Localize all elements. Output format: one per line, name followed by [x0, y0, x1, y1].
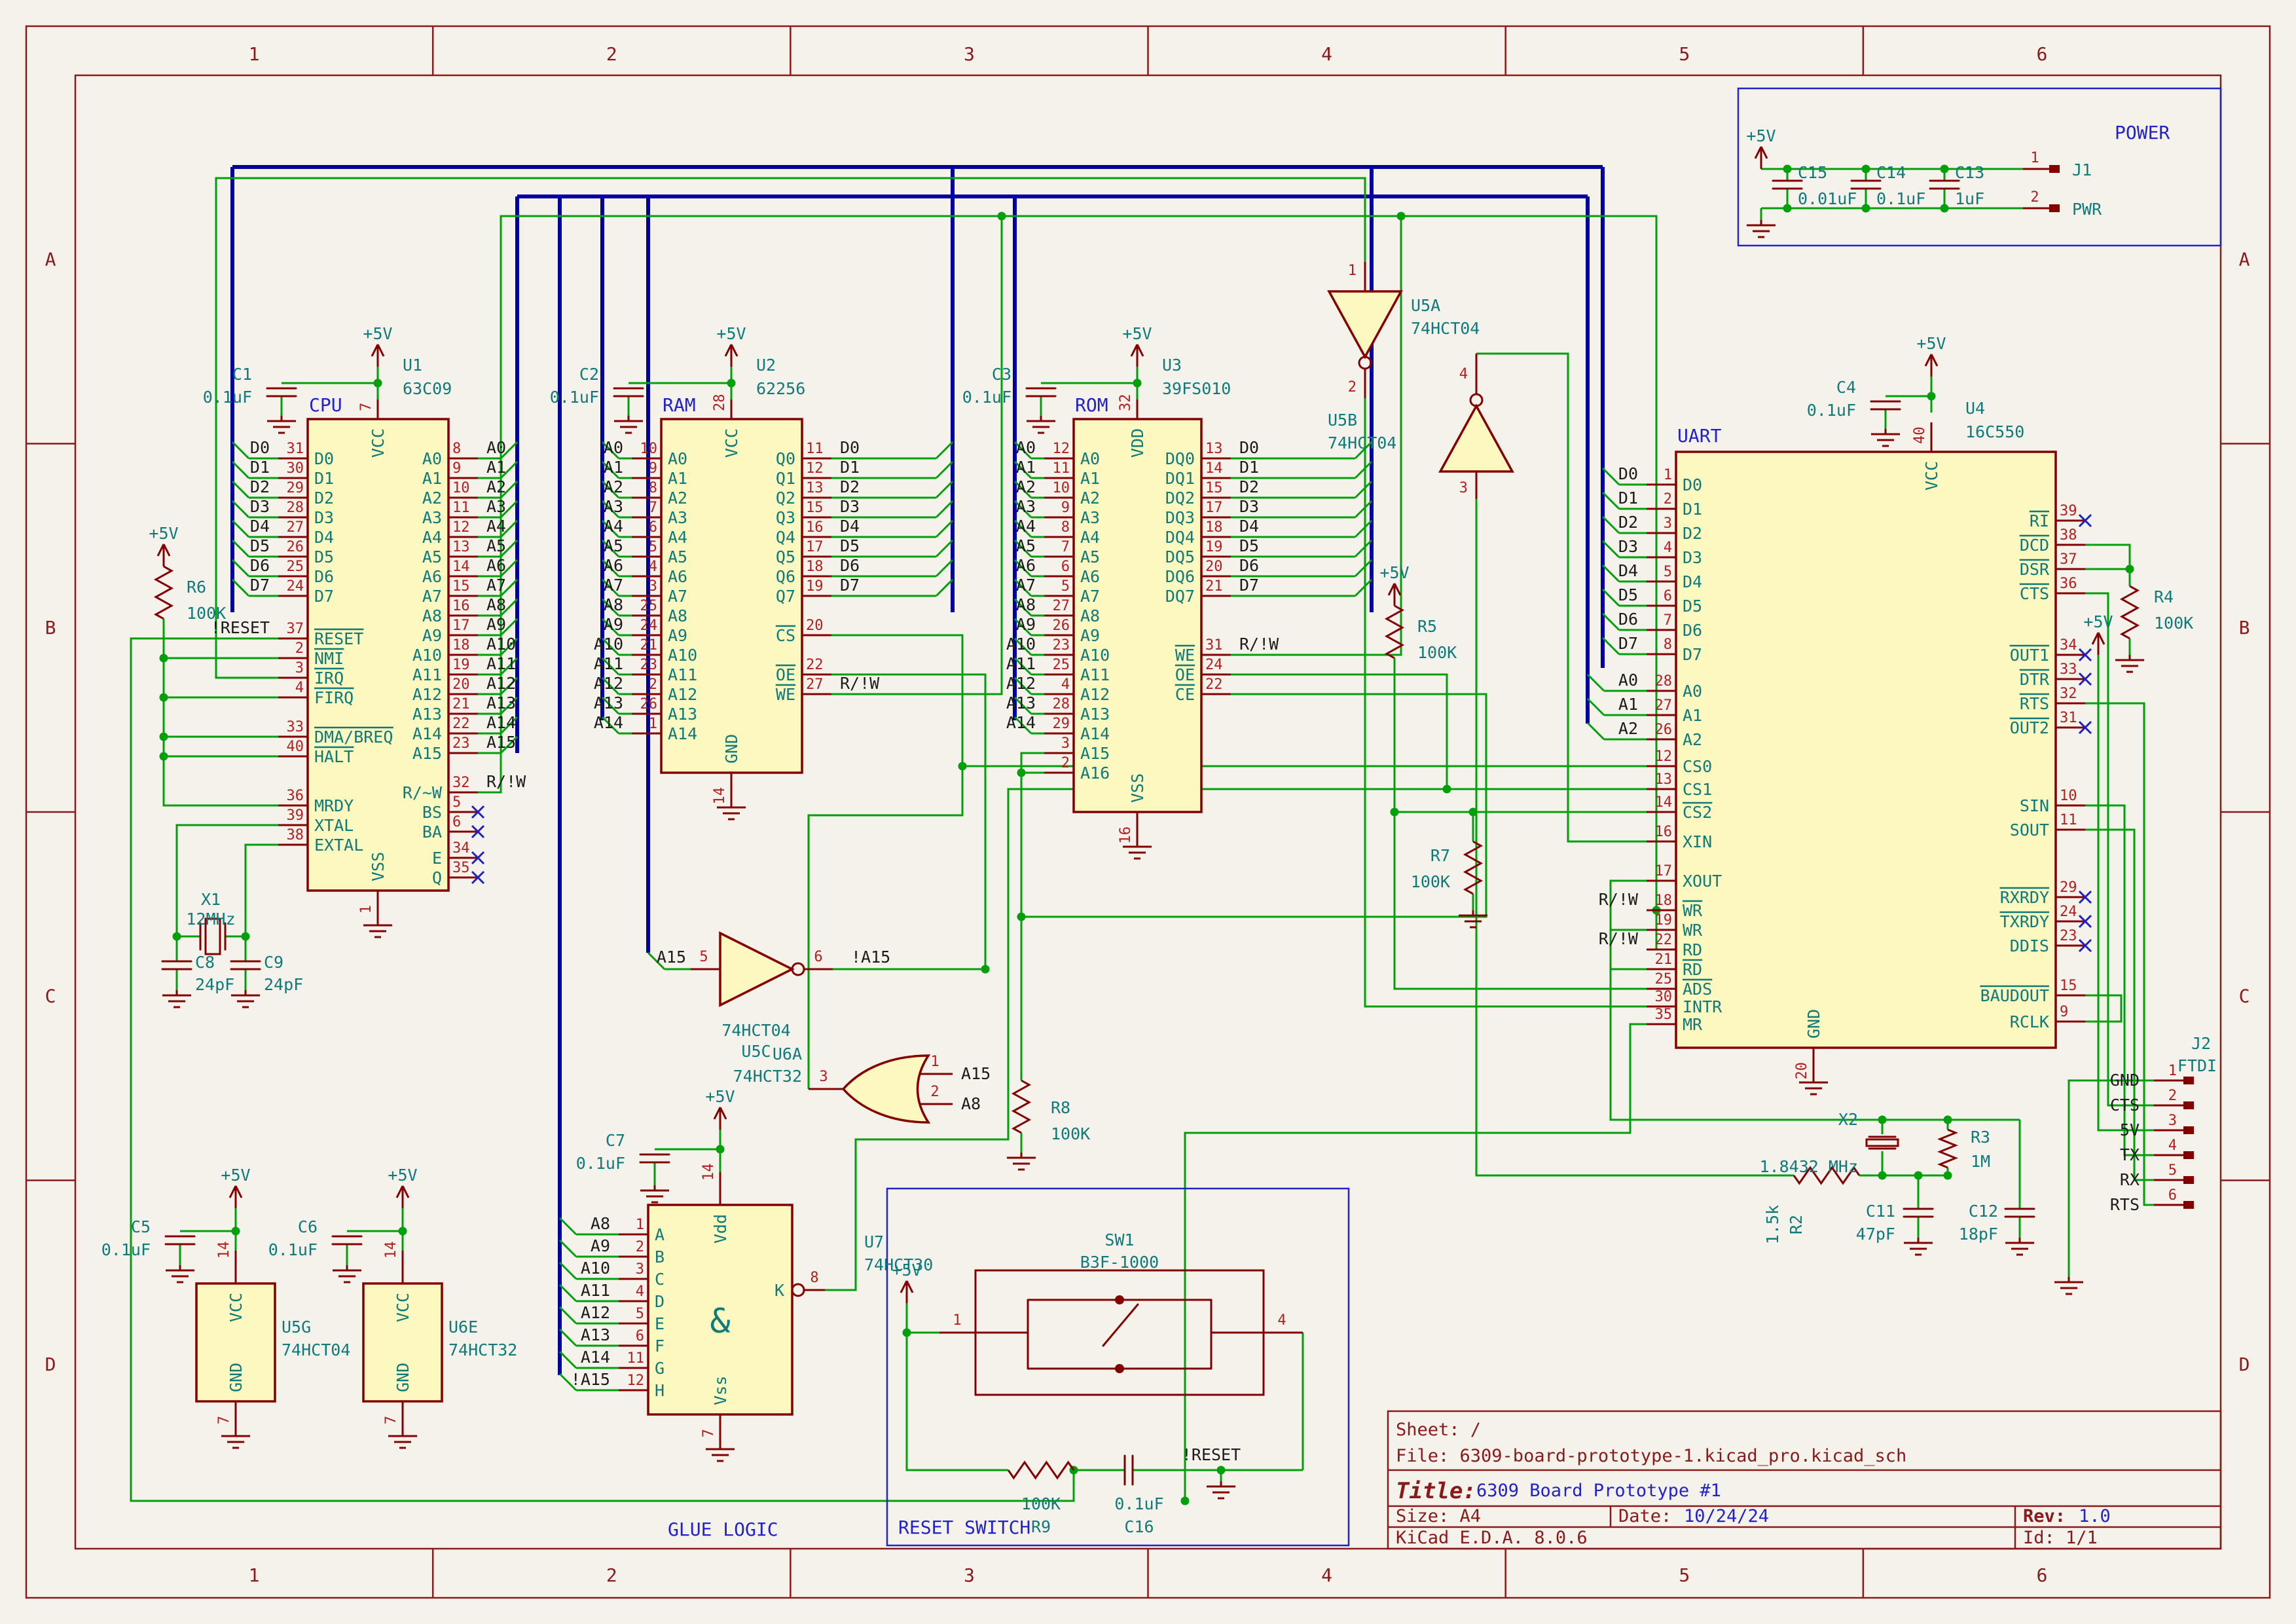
pin-number: 14	[383, 1242, 399, 1259]
pin-number: 8	[1664, 637, 1672, 653]
value-C2: 0.1uF	[550, 388, 599, 407]
value-C4: 0.1uF	[1807, 401, 1856, 420]
pin-name: NMI	[314, 649, 344, 668]
pin-number: 3	[649, 578, 657, 595]
pin-name: VCC	[393, 1293, 412, 1322]
bus-entry	[936, 501, 953, 517]
pin-name: A8	[668, 606, 687, 625]
power-5v-label: +5V	[1122, 324, 1152, 343]
pin-name: D4	[1683, 572, 1702, 591]
pin-number: 12	[806, 460, 824, 477]
pin-number: 23	[1053, 637, 1070, 654]
ref-C8: C8	[195, 953, 215, 972]
pin-name: RTS	[2020, 694, 2049, 713]
pin-name: OUT1	[2010, 646, 2049, 665]
wire	[246, 845, 278, 936]
net-label-D6: D6	[1239, 556, 1259, 575]
net-label-A10: A10	[594, 635, 623, 654]
pin-number: 6	[452, 814, 461, 830]
ref-SW1: SW1	[1104, 1230, 1134, 1249]
gnd-symbol	[363, 920, 392, 937]
pin-number: 36	[287, 788, 304, 804]
capacitor	[166, 1236, 194, 1244]
pin-name: INTR	[1683, 997, 1722, 1016]
pin-name: A7	[668, 587, 687, 606]
net-label-A8: A8	[961, 1094, 981, 1113]
net-label-A9: A9	[486, 615, 506, 634]
gnd-symbol	[1459, 910, 1487, 927]
pin-number: 1	[2168, 1063, 2177, 1079]
ref-C13: C13	[1955, 163, 1984, 182]
gnd-symbol	[388, 1431, 417, 1448]
pin-number: 26	[1053, 618, 1070, 634]
titleblock-file: File: 6309-board-prototype-1.kicad_pro.k…	[1396, 1446, 1906, 1466]
pin-number: 7	[383, 1416, 399, 1424]
pin-number: 7	[701, 1429, 717, 1437]
ic-body-U4	[1676, 452, 2056, 1048]
ref-X1: X1	[201, 890, 221, 909]
pin-name: A11	[1080, 665, 1110, 684]
ref-R3: R3	[1971, 1128, 1990, 1147]
pin-number: 30	[287, 460, 304, 477]
pin-name: RD	[1683, 960, 1702, 979]
bus-entry	[1355, 580, 1372, 596]
pin-name: CTS	[2110, 1096, 2140, 1115]
pin-name: GND	[227, 1363, 246, 1392]
power-5v-symbol: +5V	[1122, 324, 1152, 367]
bus-entry	[232, 560, 249, 576]
pin-number: 18	[1655, 893, 1673, 909]
net-label-RW: R/!W	[1599, 890, 1639, 909]
value-C8: 24pF	[195, 975, 234, 994]
ref-C16: C16	[1124, 1517, 1154, 1536]
component-U6A[interactable]: 312	[809, 1054, 953, 1122]
net-label-A5: A5	[604, 536, 623, 555]
frame-row-label: A	[2239, 248, 2250, 270]
net-label-D4: D4	[840, 517, 860, 536]
ref-C4: C4	[1836, 378, 1856, 397]
pin-name: A12	[1080, 685, 1110, 704]
net-label-A0: A0	[1618, 671, 1638, 690]
pin-name: A2	[1683, 730, 1702, 749]
net-label-A13: A13	[594, 693, 623, 712]
net-label-D2: D2	[250, 477, 270, 496]
net-label-D6: D6	[1618, 610, 1638, 629]
pin-name: D7	[314, 587, 334, 606]
pin-number: 4	[295, 680, 304, 696]
pin-number: 16	[806, 519, 824, 536]
pin-name: GND	[2110, 1071, 2140, 1090]
pin-number: 38	[2060, 527, 2077, 544]
pin-name: A3	[1080, 508, 1100, 527]
component-U5G[interactable]: 14VCC7GND	[196, 1242, 275, 1449]
value-SW1: B3F-1000	[1080, 1253, 1159, 1272]
pin-number: 11	[452, 500, 470, 516]
pin-number: 5	[636, 1306, 644, 1322]
pin-number: 20	[806, 618, 824, 634]
value-U6E: 74HCT32	[448, 1340, 517, 1359]
bus-entry	[1603, 492, 1619, 509]
pin-number: 3	[1664, 515, 1672, 532]
ref-C9: C9	[264, 953, 283, 972]
power-5v-label: +5V	[221, 1166, 250, 1185]
pin-name: HALT	[314, 747, 354, 766]
component-U5A[interactable]: 12	[1329, 262, 1401, 398]
value-R2: 1.5k	[1763, 1205, 1782, 1244]
pin-number: 6	[636, 1328, 644, 1344]
pin-name: D5	[1683, 597, 1702, 616]
section-label-ram: RAM	[663, 394, 696, 416]
pin-name: A14	[412, 724, 442, 743]
pin-number: 19	[806, 578, 824, 595]
pin-name: RD	[1683, 940, 1702, 959]
pin-name: RI	[2030, 511, 2049, 530]
pin-name: XOUT	[1683, 872, 1722, 891]
ref-R5: R5	[1417, 617, 1437, 636]
ref-R6: R6	[187, 578, 206, 597]
component-SW1[interactable]: 14	[939, 1270, 1303, 1395]
component-J2[interactable]: 1GND2CTS35V4TX5RX6RTS	[2110, 1063, 2194, 1214]
net-label: A8	[591, 1214, 610, 1233]
power-5v-symbol: +5V	[363, 324, 392, 367]
frame-row-label: A	[45, 248, 56, 270]
ref-C15: C15	[1798, 163, 1827, 182]
net-label-D1: D1	[250, 458, 270, 477]
pin-name: A0	[422, 449, 442, 468]
gnd-symbol	[1904, 1238, 1933, 1255]
pin-number: 3	[1459, 480, 1468, 496]
pin-name: A9	[1080, 626, 1100, 645]
pin-number: 2	[2030, 189, 2039, 206]
pin-number: 28	[1655, 673, 1673, 690]
titleblock-rev: 1.0	[2079, 1506, 2111, 1526]
pin-number: 2	[1061, 755, 1070, 771]
pin-name: DMA/BREQ	[314, 728, 393, 747]
value-C1: 0.1uF	[203, 388, 252, 407]
value-J1: PWR	[2072, 200, 2102, 219]
net-label-D7: D7	[1239, 576, 1259, 595]
ref-R9: R9	[1031, 1517, 1051, 1536]
pin-number: 3	[2168, 1113, 2177, 1129]
pin-name: A11	[412, 665, 442, 684]
pin-number: 2	[649, 676, 657, 693]
pin-name: A8	[1080, 606, 1100, 625]
ref-R7: R7	[1430, 846, 1450, 865]
net-label: A12	[581, 1303, 610, 1322]
pin-number: 7	[649, 500, 657, 516]
pin-name: A14	[1080, 724, 1110, 743]
bus-entry	[232, 521, 249, 537]
net-label-A5: A5	[486, 536, 506, 555]
component-U4[interactable]: 40VCC20GND1D0D02D1D13D2D24D3D35D4D46D5D5…	[1599, 422, 2091, 1094]
bus-entry	[1603, 614, 1619, 630]
net-label-D3: D3	[1618, 537, 1638, 556]
pin-name: BA	[422, 822, 442, 841]
pin-name: GND	[722, 734, 741, 764]
pin-number: 2	[1348, 379, 1357, 396]
section-label-glue-logic: GLUE LOGIC	[668, 1519, 778, 1540]
pin-name: DSR	[2020, 560, 2050, 579]
pin-name: DQ6	[1165, 567, 1195, 586]
bus-entry	[232, 481, 249, 498]
net-label-D0: D0	[1239, 438, 1259, 457]
ref-C14: C14	[1876, 163, 1906, 182]
component-J1[interactable]: 12	[2023, 150, 2060, 212]
pin-name: D1	[1683, 500, 1702, 519]
power-5v-label: +5V	[716, 324, 746, 343]
net-label-A6: A6	[486, 556, 506, 575]
value-U6A: 74HCT32	[733, 1067, 802, 1086]
component-U5C[interactable]: 56	[691, 933, 833, 1005]
bus-entry	[232, 442, 249, 458]
component-U6E[interactable]: 14VCC7GND	[363, 1242, 442, 1449]
gnd-symbol	[166, 1265, 194, 1282]
bus-entry	[1603, 565, 1619, 581]
pin-number: 3	[819, 1069, 828, 1085]
bus-entry	[936, 540, 953, 557]
net-label: A14	[581, 1348, 610, 1367]
net-label-A15: A15	[657, 948, 686, 967]
pin-name: BAUDOUT	[1980, 986, 2049, 1005]
pin-name: Q3	[776, 508, 795, 527]
net-label-D3: D3	[1239, 497, 1259, 516]
pin-name: RESET	[314, 629, 363, 648]
capacitor-C16	[1125, 1456, 1133, 1485]
bus-entry	[232, 501, 249, 517]
resistor-R5	[1387, 606, 1402, 658]
pin-number: 29	[287, 480, 304, 496]
pin-number: 20	[1794, 1062, 1810, 1080]
pin-number: 20	[452, 676, 470, 693]
pin-name: A10	[668, 646, 697, 665]
net-label-D5: D5	[1239, 536, 1259, 555]
pin-number: 9	[452, 460, 461, 477]
component-U5B[interactable]: 43	[1440, 354, 1512, 499]
pin-number: 15	[2060, 978, 2077, 994]
pin-number: 23	[2060, 928, 2077, 944]
pin-number: 14	[1205, 460, 1223, 477]
pin-number: 32	[452, 775, 470, 791]
value-C7: 0.1uF	[576, 1154, 625, 1173]
net-label-A7: A7	[604, 576, 623, 595]
net-label-A14: A14	[1006, 713, 1036, 732]
pin-number: 11	[1053, 460, 1070, 477]
pin-name: A1	[668, 469, 687, 488]
junction-dot	[958, 762, 967, 771]
value-U5A: 74HCT04	[1411, 319, 1480, 338]
ref-C3: C3	[992, 365, 1011, 384]
net-label-D5: D5	[1618, 585, 1638, 604]
pin-name: WR	[1683, 901, 1703, 920]
pin-number: 22	[452, 716, 470, 732]
frame-row-label: B	[2239, 617, 2250, 638]
pin-number: 4	[1277, 1312, 1286, 1329]
pin-name: D7	[1683, 645, 1702, 664]
pin-number: 19	[452, 657, 470, 673]
value-C12: 18pF	[1959, 1225, 1998, 1244]
ref-U4: U4	[1965, 399, 1985, 418]
frame-row-label: D	[45, 1354, 56, 1375]
ref-J2: J2	[2191, 1034, 2211, 1053]
net-label-A2: A2	[604, 477, 623, 496]
pin-number: 12	[1053, 441, 1070, 457]
net-label-A1: A1	[1618, 695, 1638, 714]
pin-name: A9	[422, 626, 442, 645]
component-U1[interactable]: 7VCC1VSS31D0D030D1D129D2D228D3D327D4D426…	[211, 399, 526, 937]
pin-name: Q2	[776, 489, 795, 507]
pin-name: EXTAL	[314, 836, 363, 855]
pin-name: A9	[668, 626, 687, 645]
pin-name: DQ0	[1165, 449, 1195, 468]
frame-column-label: 3	[964, 43, 975, 65]
pin-number: 1	[1664, 467, 1672, 483]
pin-number: 15	[1205, 480, 1223, 496]
net-label-A8: A8	[486, 595, 506, 614]
wire	[2085, 545, 2130, 569]
value-U5B: 74HCT04	[1328, 434, 1396, 452]
pin-number: 31	[2060, 710, 2077, 726]
junction-dot	[1017, 769, 1026, 777]
pin-name: A5	[422, 547, 442, 566]
pin-name: A1	[1683, 706, 1702, 725]
junction-dot	[1914, 1172, 1923, 1180]
net-label-A9: A9	[604, 615, 623, 634]
power-5v-label: +5V	[705, 1087, 735, 1106]
pin-name: Q1	[776, 469, 795, 488]
gnd-symbol	[1747, 220, 1776, 237]
ref-U5A: U5A	[1411, 296, 1440, 315]
pin-number: 26	[1655, 722, 1673, 738]
ref-C11: C11	[1866, 1202, 1895, 1221]
power-5v-symbol: +5V	[149, 524, 178, 566]
frame-column-label: 1	[249, 1564, 260, 1586]
pin-name: A4	[668, 528, 687, 547]
value-U3: 39FS010	[1162, 379, 1231, 398]
nand-glyph: &	[710, 1302, 730, 1341]
bus-entry	[936, 580, 953, 596]
ref-X2: X2	[1838, 1110, 1858, 1129]
pin-number: 4	[649, 559, 657, 575]
pin-number: 21	[1655, 951, 1673, 968]
pin-name: D3	[1683, 548, 1702, 567]
bus-entry	[1603, 517, 1619, 533]
pin-number: 11	[2060, 812, 2077, 828]
power-5v-symbol: +5V	[705, 1087, 735, 1130]
pin-name: D3	[314, 508, 334, 527]
pin-number: 16	[1655, 824, 1673, 840]
pin-number: 2	[636, 1239, 644, 1255]
pin-name: 5V	[2120, 1120, 2140, 1139]
pin-number: 18	[452, 637, 470, 654]
pin-name: A10	[412, 646, 442, 665]
pin-name: D5	[314, 547, 334, 566]
net-label-D0: D0	[840, 438, 860, 457]
pin-number: 4	[2168, 1137, 2177, 1154]
net-label-D7: D7	[840, 576, 860, 595]
pin-number: 32	[1118, 394, 1134, 412]
net-label-D1: D1	[1239, 458, 1259, 477]
net-label-RW: R/!W	[1599, 929, 1639, 948]
pin-number: 21	[640, 637, 658, 654]
pin-name: RTS	[2110, 1195, 2140, 1214]
value-C5: 0.1uF	[101, 1240, 151, 1259]
component-U7[interactable]: &14Vdd7Vss1A2B3C4D5E6F11G12HK8	[619, 1164, 825, 1462]
ref-U5B: U5B	[1328, 411, 1357, 430]
power-5v-symbol: +5V	[1379, 563, 1409, 606]
value-X1: 12MHz	[186, 910, 235, 929]
bus-entry	[1588, 674, 1604, 691]
pin-number: 18	[806, 559, 824, 575]
capacitor-C12	[2005, 1209, 2034, 1217]
bus-entry	[560, 1218, 576, 1234]
net-label-A12: A12	[486, 674, 516, 693]
pin-number: 24	[1205, 657, 1223, 673]
wire-ramcs	[809, 635, 962, 1089]
pin-name: DQ5	[1165, 547, 1195, 566]
bus-entry	[560, 1352, 576, 1368]
pin-name: Q4	[776, 528, 795, 547]
bus-entry	[232, 580, 249, 596]
bus-entry	[232, 540, 249, 557]
pin-number: 2	[1664, 491, 1672, 507]
pin-number: 7	[1664, 612, 1672, 629]
value-U5C: 74HCT04	[721, 1021, 790, 1040]
pin-number: 22	[1205, 676, 1223, 693]
pin-number: 25	[640, 598, 658, 614]
pin-name: A13	[668, 705, 697, 724]
pin-name: E	[432, 849, 442, 868]
resistor-R6	[156, 566, 172, 619]
net-label: A9	[591, 1236, 610, 1255]
pin-number: 6	[1664, 588, 1672, 604]
net-label-RW: R/!W	[840, 674, 880, 693]
net-label-D0: D0	[1618, 464, 1638, 483]
pin-number: 37	[2060, 551, 2077, 568]
gnd-symbol	[2054, 1277, 2083, 1294]
net-label-A12: A12	[594, 674, 623, 693]
value-C3: 0.1uF	[962, 388, 1011, 407]
pin-number: 4	[1061, 676, 1070, 693]
net-label-D1: D1	[1618, 489, 1638, 507]
bus-entry	[1603, 541, 1619, 557]
power-5v-label: +5V	[1916, 334, 1946, 353]
ref-U5C: U5C	[741, 1042, 771, 1061]
section-label-reset-switch: RESET SWITCH	[898, 1517, 1030, 1538]
wire	[1231, 674, 1447, 789]
bus-entry	[1355, 521, 1372, 537]
pin-number: 20	[1205, 559, 1223, 575]
net-label-A9: A9	[1016, 615, 1036, 634]
pin-name: D2	[314, 489, 334, 507]
pin-name: C	[655, 1270, 665, 1289]
resistor-R4	[2122, 586, 2138, 638]
power-5v-symbol: +5V	[1916, 334, 1946, 377]
net-label-A13: A13	[1006, 693, 1036, 712]
pin-number: 24	[2060, 904, 2077, 920]
pin-number: 13	[452, 539, 470, 555]
ref-U6A: U6A	[773, 1044, 802, 1063]
net-label-D4: D4	[1618, 561, 1638, 580]
net-label-A1: A1	[1016, 458, 1036, 477]
junction-dot	[1862, 204, 1870, 213]
pin-number: 39	[2060, 503, 2077, 519]
net-label-A7: A7	[486, 576, 506, 595]
value-R7: 100K	[1411, 872, 1450, 891]
bus-entry	[560, 1240, 576, 1257]
pin-number: 13	[1655, 771, 1673, 788]
junction-dot	[1017, 913, 1026, 921]
pin-name: A1	[422, 469, 442, 488]
